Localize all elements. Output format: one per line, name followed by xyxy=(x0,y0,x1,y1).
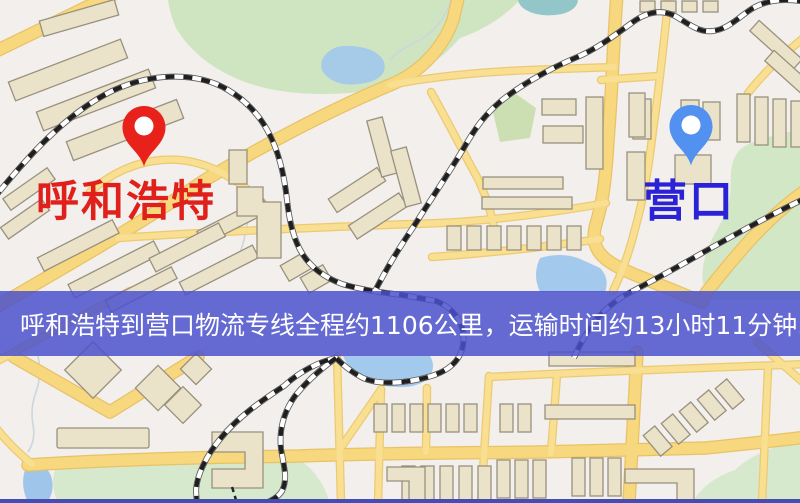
map-screenshot: 呼和浩特到营口物流专线全程约1106公里，运输时间约13小时11分钟. 呼和浩特… xyxy=(0,0,800,503)
route-info-banner: 呼和浩特到营口物流专线全程约1106公里，运输时间约13小时11分钟. xyxy=(0,291,800,356)
origin-pin-icon[interactable] xyxy=(121,105,167,168)
origin-pin-hole xyxy=(135,117,154,136)
destination-pin-hole xyxy=(682,116,701,135)
route-info-text: 呼和浩特到营口物流专线全程约1106公里，运输时间约13小时11分钟. xyxy=(0,306,800,342)
origin-pin-shape xyxy=(123,106,166,167)
destination-pin-shape xyxy=(670,105,713,166)
map-canvas xyxy=(0,0,800,503)
origin-label: 呼和浩特 xyxy=(36,181,216,224)
bottom-edge-strip xyxy=(0,499,800,503)
destination-pin-icon[interactable] xyxy=(668,104,714,167)
destination-label: 营口 xyxy=(643,180,735,224)
